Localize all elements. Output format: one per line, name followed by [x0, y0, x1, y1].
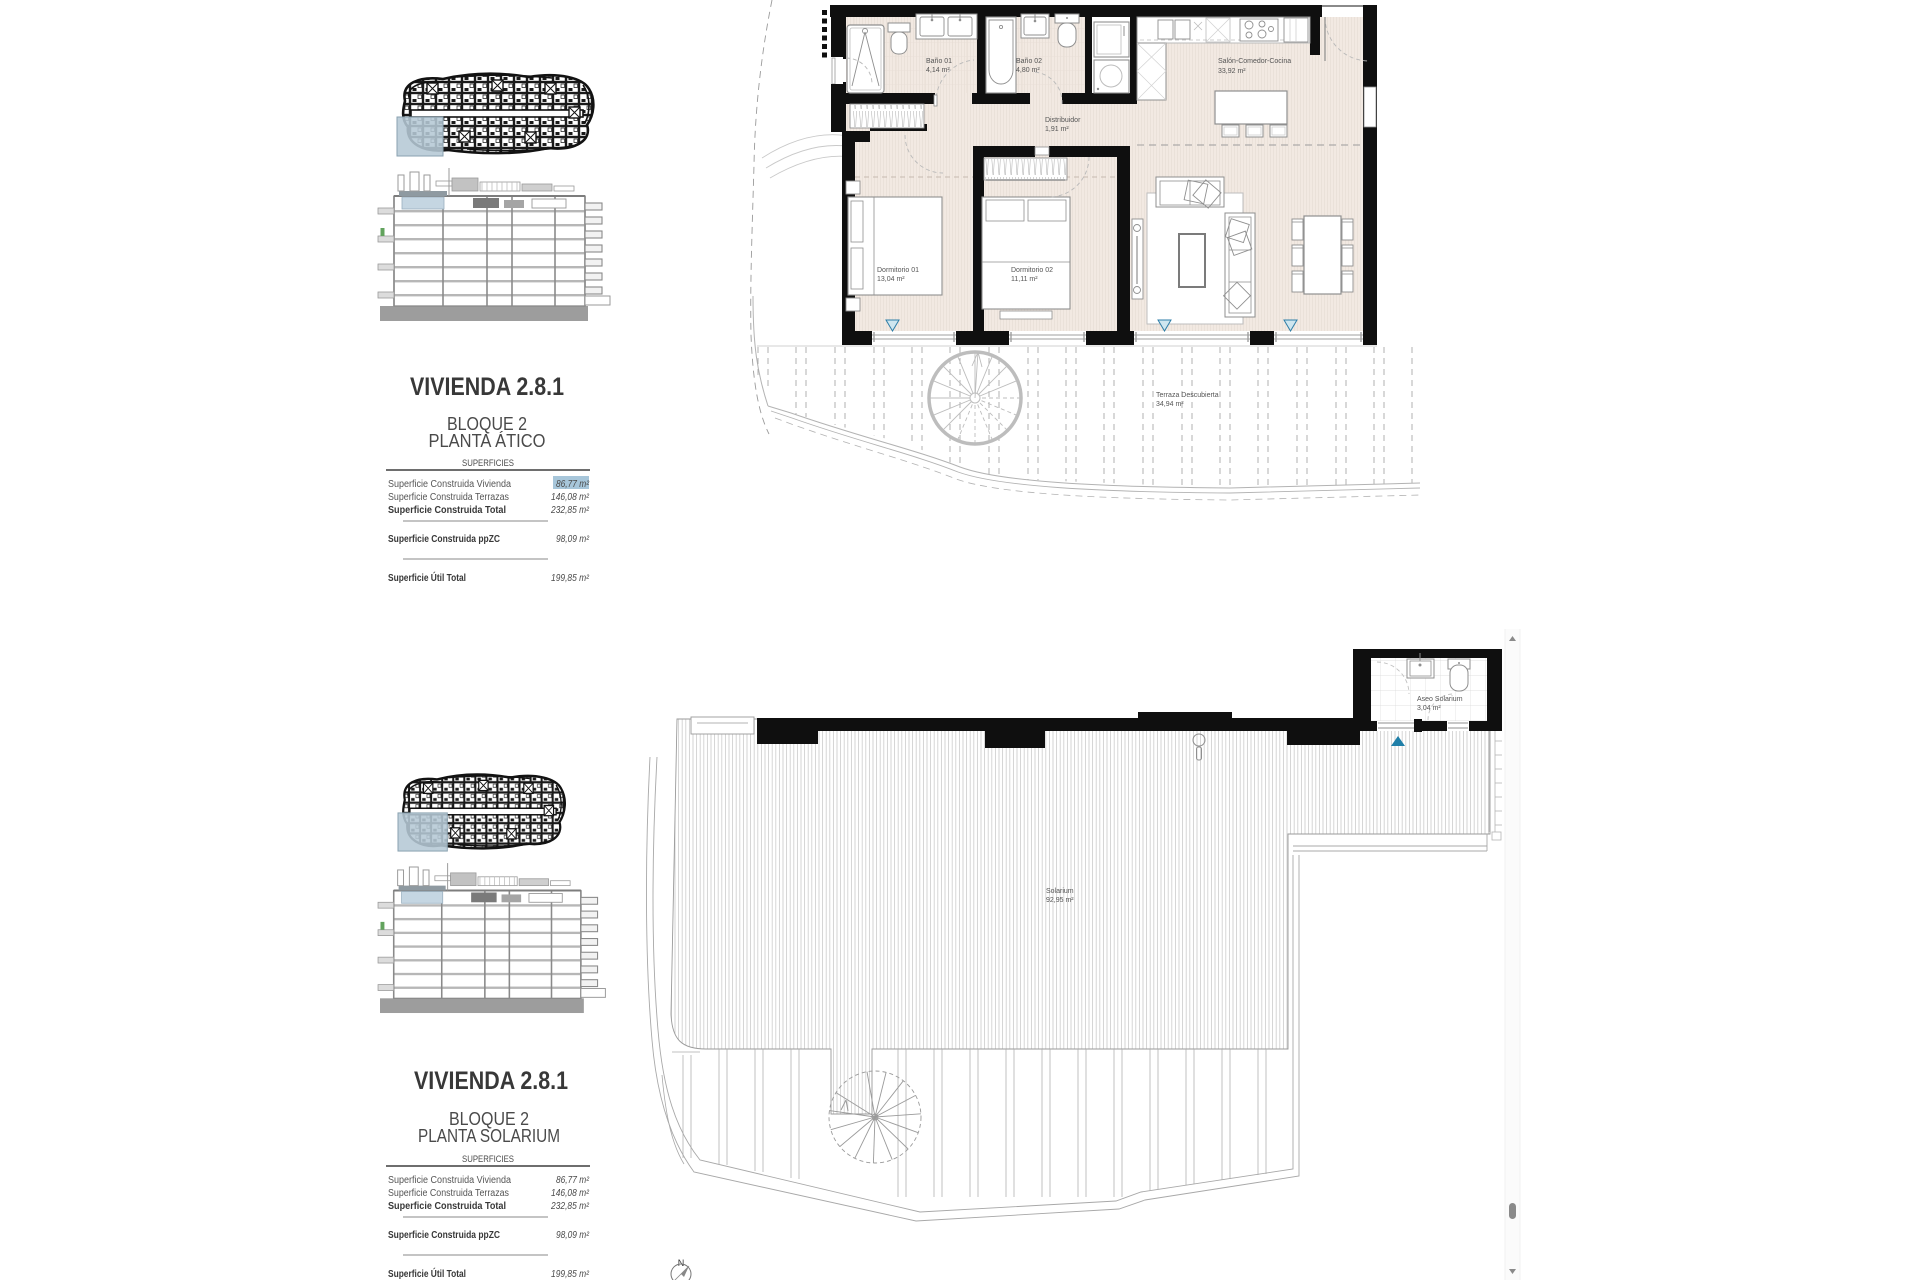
svg-text:VIVIENDA 2.8.1: VIVIENDA 2.8.1: [410, 373, 564, 401]
svg-text:Dormitorio 01: Dormitorio 01: [877, 267, 919, 274]
svg-text:PLANTA SOLARIUM: PLANTA SOLARIUM: [418, 1126, 560, 1146]
svg-text:SUPERFICIES: SUPERFICIES: [462, 458, 514, 469]
svg-text:VIVIENDA 2.8.1: VIVIENDA 2.8.1: [414, 1067, 568, 1095]
svg-text:Superficie Construida Vivienda: Superficie Construida Vivienda: [388, 1175, 511, 1186]
svg-text:146,08 m²: 146,08 m²: [551, 492, 590, 503]
svg-text:86,77 m²: 86,77 m²: [556, 479, 590, 490]
svg-text:199,85 m²: 199,85 m²: [551, 1269, 590, 1280]
svg-text:Terraza Descubierta: Terraza Descubierta: [1156, 392, 1219, 399]
svg-text:92,95 m²: 92,95 m²: [1046, 897, 1074, 904]
svg-text:Superficie Construida Vivienda: Superficie Construida Vivienda: [388, 479, 511, 490]
svg-text:Superficie Construida Total: Superficie Construida Total: [388, 505, 506, 516]
svg-text:199,85 m²: 199,85 m²: [551, 573, 590, 584]
svg-text:146,08 m²: 146,08 m²: [551, 1188, 590, 1199]
svg-text:232,85 m²: 232,85 m²: [550, 505, 589, 516]
svg-text:Superficie Construida Terrazas: Superficie Construida Terrazas: [388, 1188, 509, 1199]
svg-text:SUPERFICIES: SUPERFICIES: [462, 1154, 514, 1165]
svg-text:Salón-Comedor-Cocina: Salón-Comedor-Cocina: [1218, 58, 1291, 65]
svg-text:33,92 m²: 33,92 m²: [1218, 68, 1246, 75]
svg-text:98,09 m²: 98,09 m²: [556, 534, 590, 545]
svg-text:Dormitorio 02: Dormitorio 02: [1011, 267, 1053, 274]
svg-text:98,09 m²: 98,09 m²: [556, 1230, 590, 1241]
svg-text:Solarium: Solarium: [1046, 888, 1074, 895]
svg-text:Distribuidor: Distribuidor: [1045, 117, 1081, 124]
svg-text:86,77 m²: 86,77 m²: [556, 1175, 590, 1186]
svg-text:PLANTA ÁTICO: PLANTA ÁTICO: [429, 431, 546, 451]
svg-text:34,94 m²: 34,94 m²: [1156, 401, 1184, 408]
svg-text:Superficie Construida Total: Superficie Construida Total: [388, 1201, 506, 1212]
svg-text:Baño 01: Baño 01: [926, 58, 952, 65]
svg-text:4,14 m²: 4,14 m²: [926, 67, 950, 74]
svg-text:Superficie Construida Terrazas: Superficie Construida Terrazas: [388, 492, 509, 503]
svg-text:232,85 m²: 232,85 m²: [550, 1201, 589, 1212]
svg-text:Superficie Útil Total: Superficie Útil Total: [388, 571, 466, 584]
svg-text:Superficie Construida ppZC: Superficie Construida ppZC: [388, 1230, 500, 1241]
svg-text:3,04 m²: 3,04 m²: [1417, 705, 1441, 712]
svg-text:Baño 02: Baño 02: [1016, 58, 1042, 65]
svg-text:Superficie Construida ppZC: Superficie Construida ppZC: [388, 534, 500, 545]
svg-text:N: N: [678, 1258, 685, 1268]
svg-text:13,04 m²: 13,04 m²: [877, 276, 905, 283]
svg-text:11,11 m²: 11,11 m²: [1011, 276, 1038, 283]
svg-text:Aseo Solarium: Aseo Solarium: [1417, 696, 1463, 703]
svg-text:1,91 m²: 1,91 m²: [1045, 126, 1069, 133]
svg-text:Superficie Útil Total: Superficie Útil Total: [388, 1267, 466, 1280]
svg-text:4,80 m²: 4,80 m²: [1016, 67, 1040, 74]
